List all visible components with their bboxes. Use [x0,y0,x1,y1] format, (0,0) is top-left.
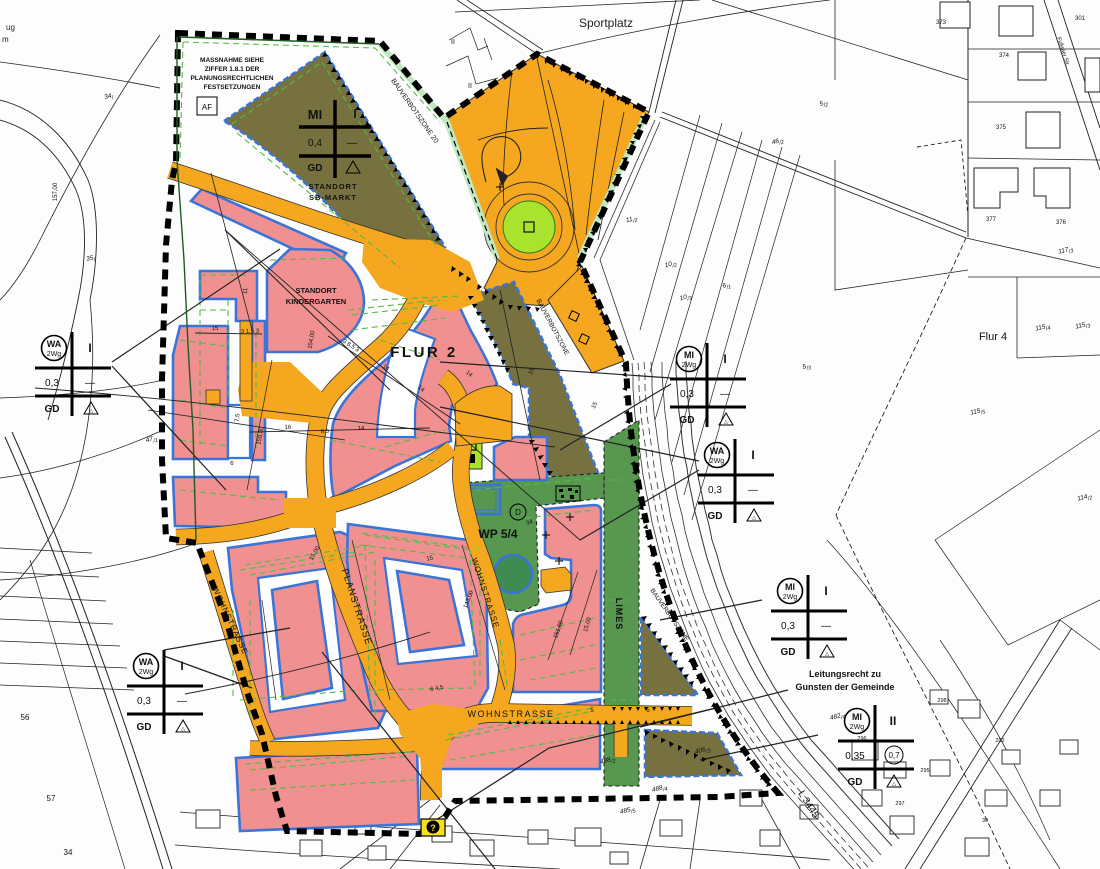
svg-text:375: 375 [996,125,1007,131]
svg-text:m: m [2,35,9,44]
svg-text:I: I [88,341,91,355]
svg-text:GD: GD [137,722,152,733]
svg-text:△: △ [89,408,93,414]
svg-text:—: — [177,696,187,707]
svg-text:I: I [180,659,183,673]
svg-text:0,3: 0,3 [680,389,694,400]
svg-text:ug: ug [6,23,15,32]
svg-text:—: — [821,621,831,632]
svg-text:△: △ [752,515,756,521]
svg-text:296: 296 [857,736,866,742]
svg-text:I: I [824,584,827,598]
svg-text:0,35: 0,35 [845,751,865,762]
svg-text:WOHNSTRASSE: WOHNSTRASSE [467,709,554,719]
svg-text:GD: GD [45,404,60,415]
svg-text:15: 15 [212,326,220,332]
svg-text:GD: GD [680,415,695,426]
svg-text:PLANUNGSRECHTLICHEN: PLANUNGSRECHTLICHEN [190,75,273,82]
svg-text:I: I [353,107,356,121]
svg-text:376: 376 [1056,220,1067,226]
svg-text:2Wg: 2Wg [47,351,62,358]
svg-text:MI: MI [785,582,795,592]
svg-text:8,5: 8,5 [321,429,330,435]
svg-text:—: — [347,138,357,149]
svg-text:2Wg: 2Wg [850,724,865,731]
svg-text:0,3: 0,3 [137,696,151,707]
svg-text:2Wg: 2Wg [139,669,154,676]
svg-text:WA: WA [139,657,154,667]
svg-text:2Wg: 2Wg [783,594,798,601]
svg-text:Flur 4: Flur 4 [979,331,1007,343]
svg-text:?: ? [430,823,436,833]
svg-text:AF: AF [202,103,212,112]
svg-text:KINDERGARTEN: KINDERGARTEN [286,297,346,306]
svg-text:Gunsten der Gemeinde: Gunsten der Gemeinde [795,682,894,692]
svg-text:MI: MI [852,712,862,722]
svg-text:GD: GD [308,163,323,174]
svg-text:14: 14 [357,426,365,432]
svg-text:295: 295 [920,768,929,774]
svg-text:374: 374 [999,53,1010,59]
svg-text:2Wg: 2Wg [682,362,697,369]
svg-text:0,3: 0,3 [708,485,722,496]
svg-text:△: △ [892,781,896,787]
svg-text:7,5: 7,5 [235,413,242,422]
svg-text:0,7: 0,7 [888,751,900,760]
svg-text:D: D [515,508,521,517]
svg-text:0,3: 0,3 [781,621,795,632]
svg-text:GD: GD [848,777,863,788]
svg-text:Leitungsrecht zu: Leitungsrecht zu [809,669,881,679]
svg-text:157,00: 157,00 [53,182,59,201]
svg-text:ZIFFER 1.8.1 DER: ZIFFER 1.8.1 DER [205,66,260,73]
svg-text:MASSNAHME SIEHE: MASSNAHME SIEHE [200,57,265,64]
svg-text:—: — [720,389,730,400]
svg-text:△: △ [825,651,829,657]
svg-text:GD: GD [781,647,796,658]
svg-text:377: 377 [986,217,997,223]
svg-text:56: 56 [21,713,30,722]
svg-text:34: 34 [64,848,73,857]
svg-text:FLUR 2: FLUR 2 [390,344,458,361]
svg-text:16: 16 [284,425,292,431]
svg-text:△: △ [724,419,728,425]
svg-text:Sportplatz: Sportplatz [579,16,633,30]
svg-text:298: 298 [937,698,946,704]
svg-text:297: 297 [895,801,904,807]
svg-text:II: II [890,714,897,728]
svg-text:WA: WA [47,339,62,349]
svg-text:MI: MI [684,350,694,360]
svg-text:2Wg: 2Wg [710,458,725,465]
svg-text:202: 202 [995,738,1004,744]
svg-text:I: I [723,352,726,366]
svg-text:301: 301 [1075,16,1086,22]
svg-text:I: I [751,448,754,462]
svg-text:△: △ [181,726,185,732]
svg-text:11: 11 [243,287,250,294]
svg-text:WA: WA [710,446,725,456]
svg-text:—: — [748,485,758,496]
svg-text:II: II [468,83,472,90]
svg-text:STANDORT: STANDORT [308,182,357,191]
svg-text:3 1,5 3: 3 1,5 3 [241,329,260,336]
svg-text:57: 57 [47,794,56,803]
svg-text:GD: GD [708,511,723,522]
svg-text:0,4: 0,4 [308,138,322,149]
svg-text:0,3: 0,3 [45,378,59,389]
svg-text:MI: MI [308,107,322,122]
svg-text:WP 5/4: WP 5/4 [478,527,517,541]
svg-text:II: II [451,39,455,46]
svg-text:LIMES: LIMES [614,598,624,631]
svg-text:FESTSETZUNGEN: FESTSETZUNGEN [204,84,261,91]
svg-text:SB-MARKT: SB-MARKT [309,193,357,202]
svg-text:—: — [85,378,95,389]
svg-text:STANDORT: STANDORT [295,286,337,295]
svg-text:373: 373 [936,20,947,26]
svg-text:30: 30 [982,818,988,824]
